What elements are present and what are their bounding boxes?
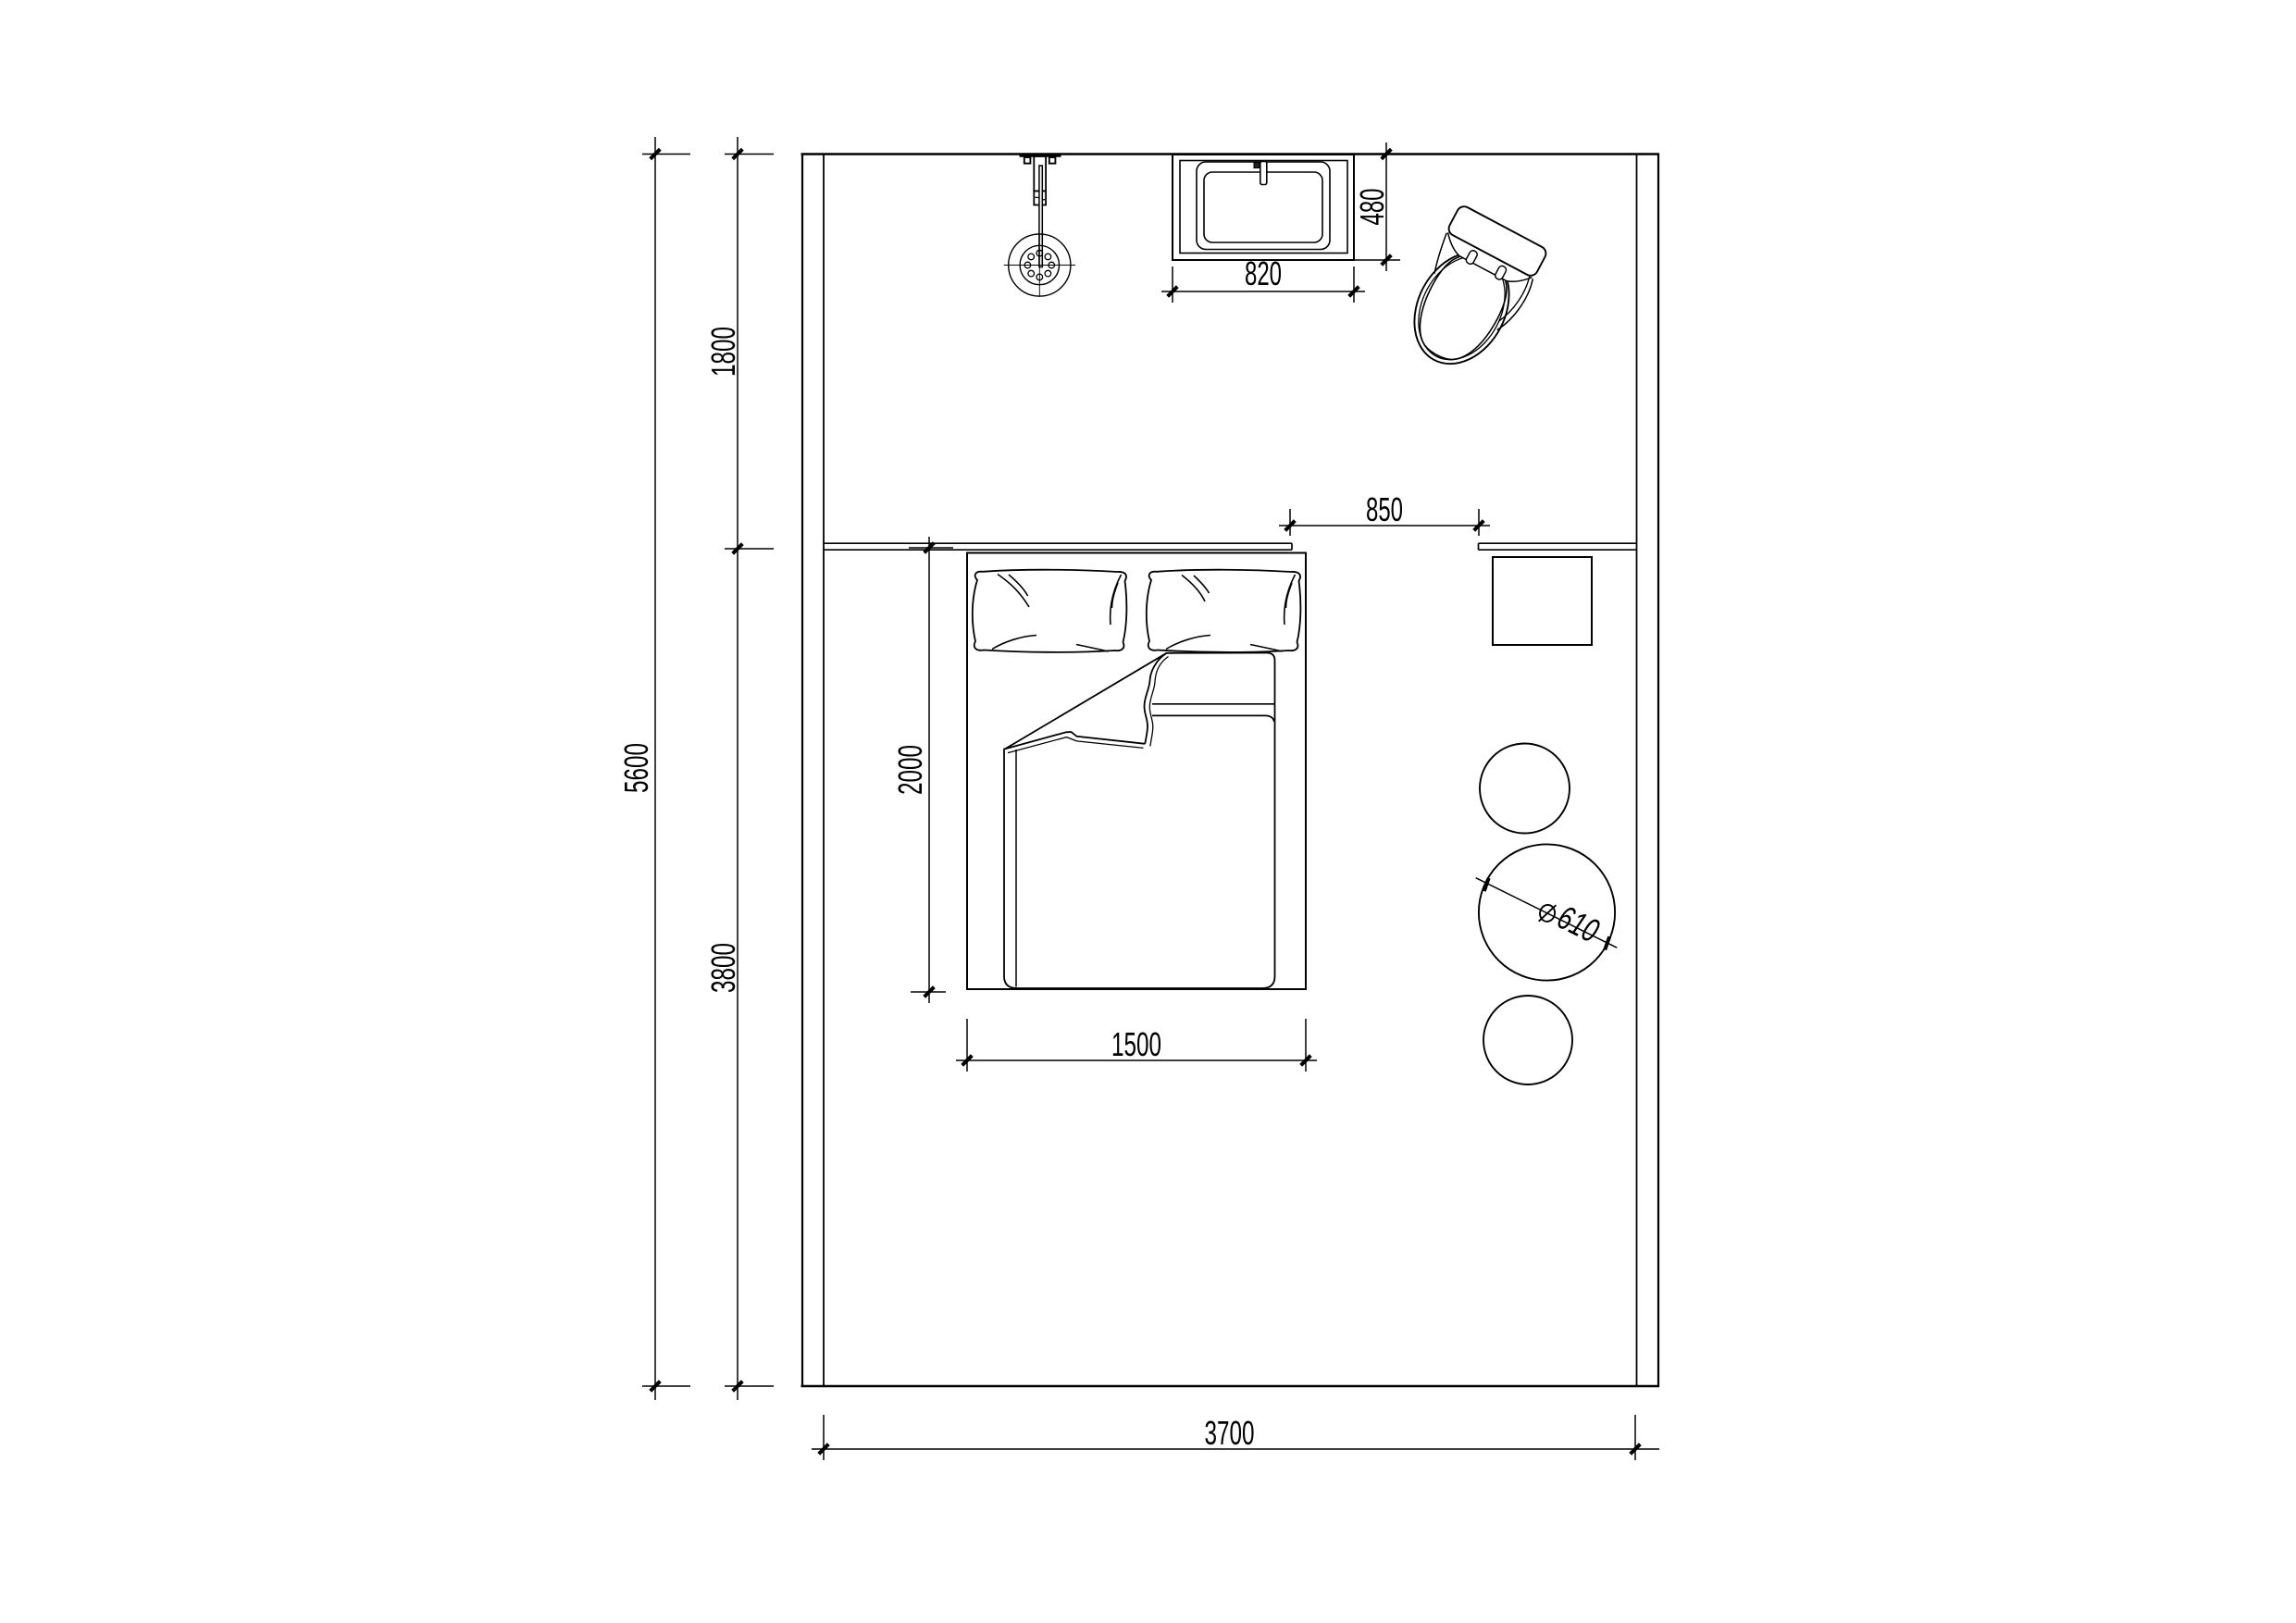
svg-text:1500: 1500	[1111, 1025, 1161, 1063]
svg-text:3800: 3800	[704, 943, 742, 993]
svg-text:5600: 5600	[617, 743, 655, 793]
svg-text:480: 480	[1353, 189, 1391, 226]
svg-text:1800: 1800	[704, 327, 742, 377]
svg-text:820: 820	[1245, 254, 1282, 292]
svg-text:2000: 2000	[891, 745, 929, 795]
svg-text:850: 850	[1366, 490, 1403, 528]
svg-text:3700: 3700	[1205, 1414, 1255, 1452]
